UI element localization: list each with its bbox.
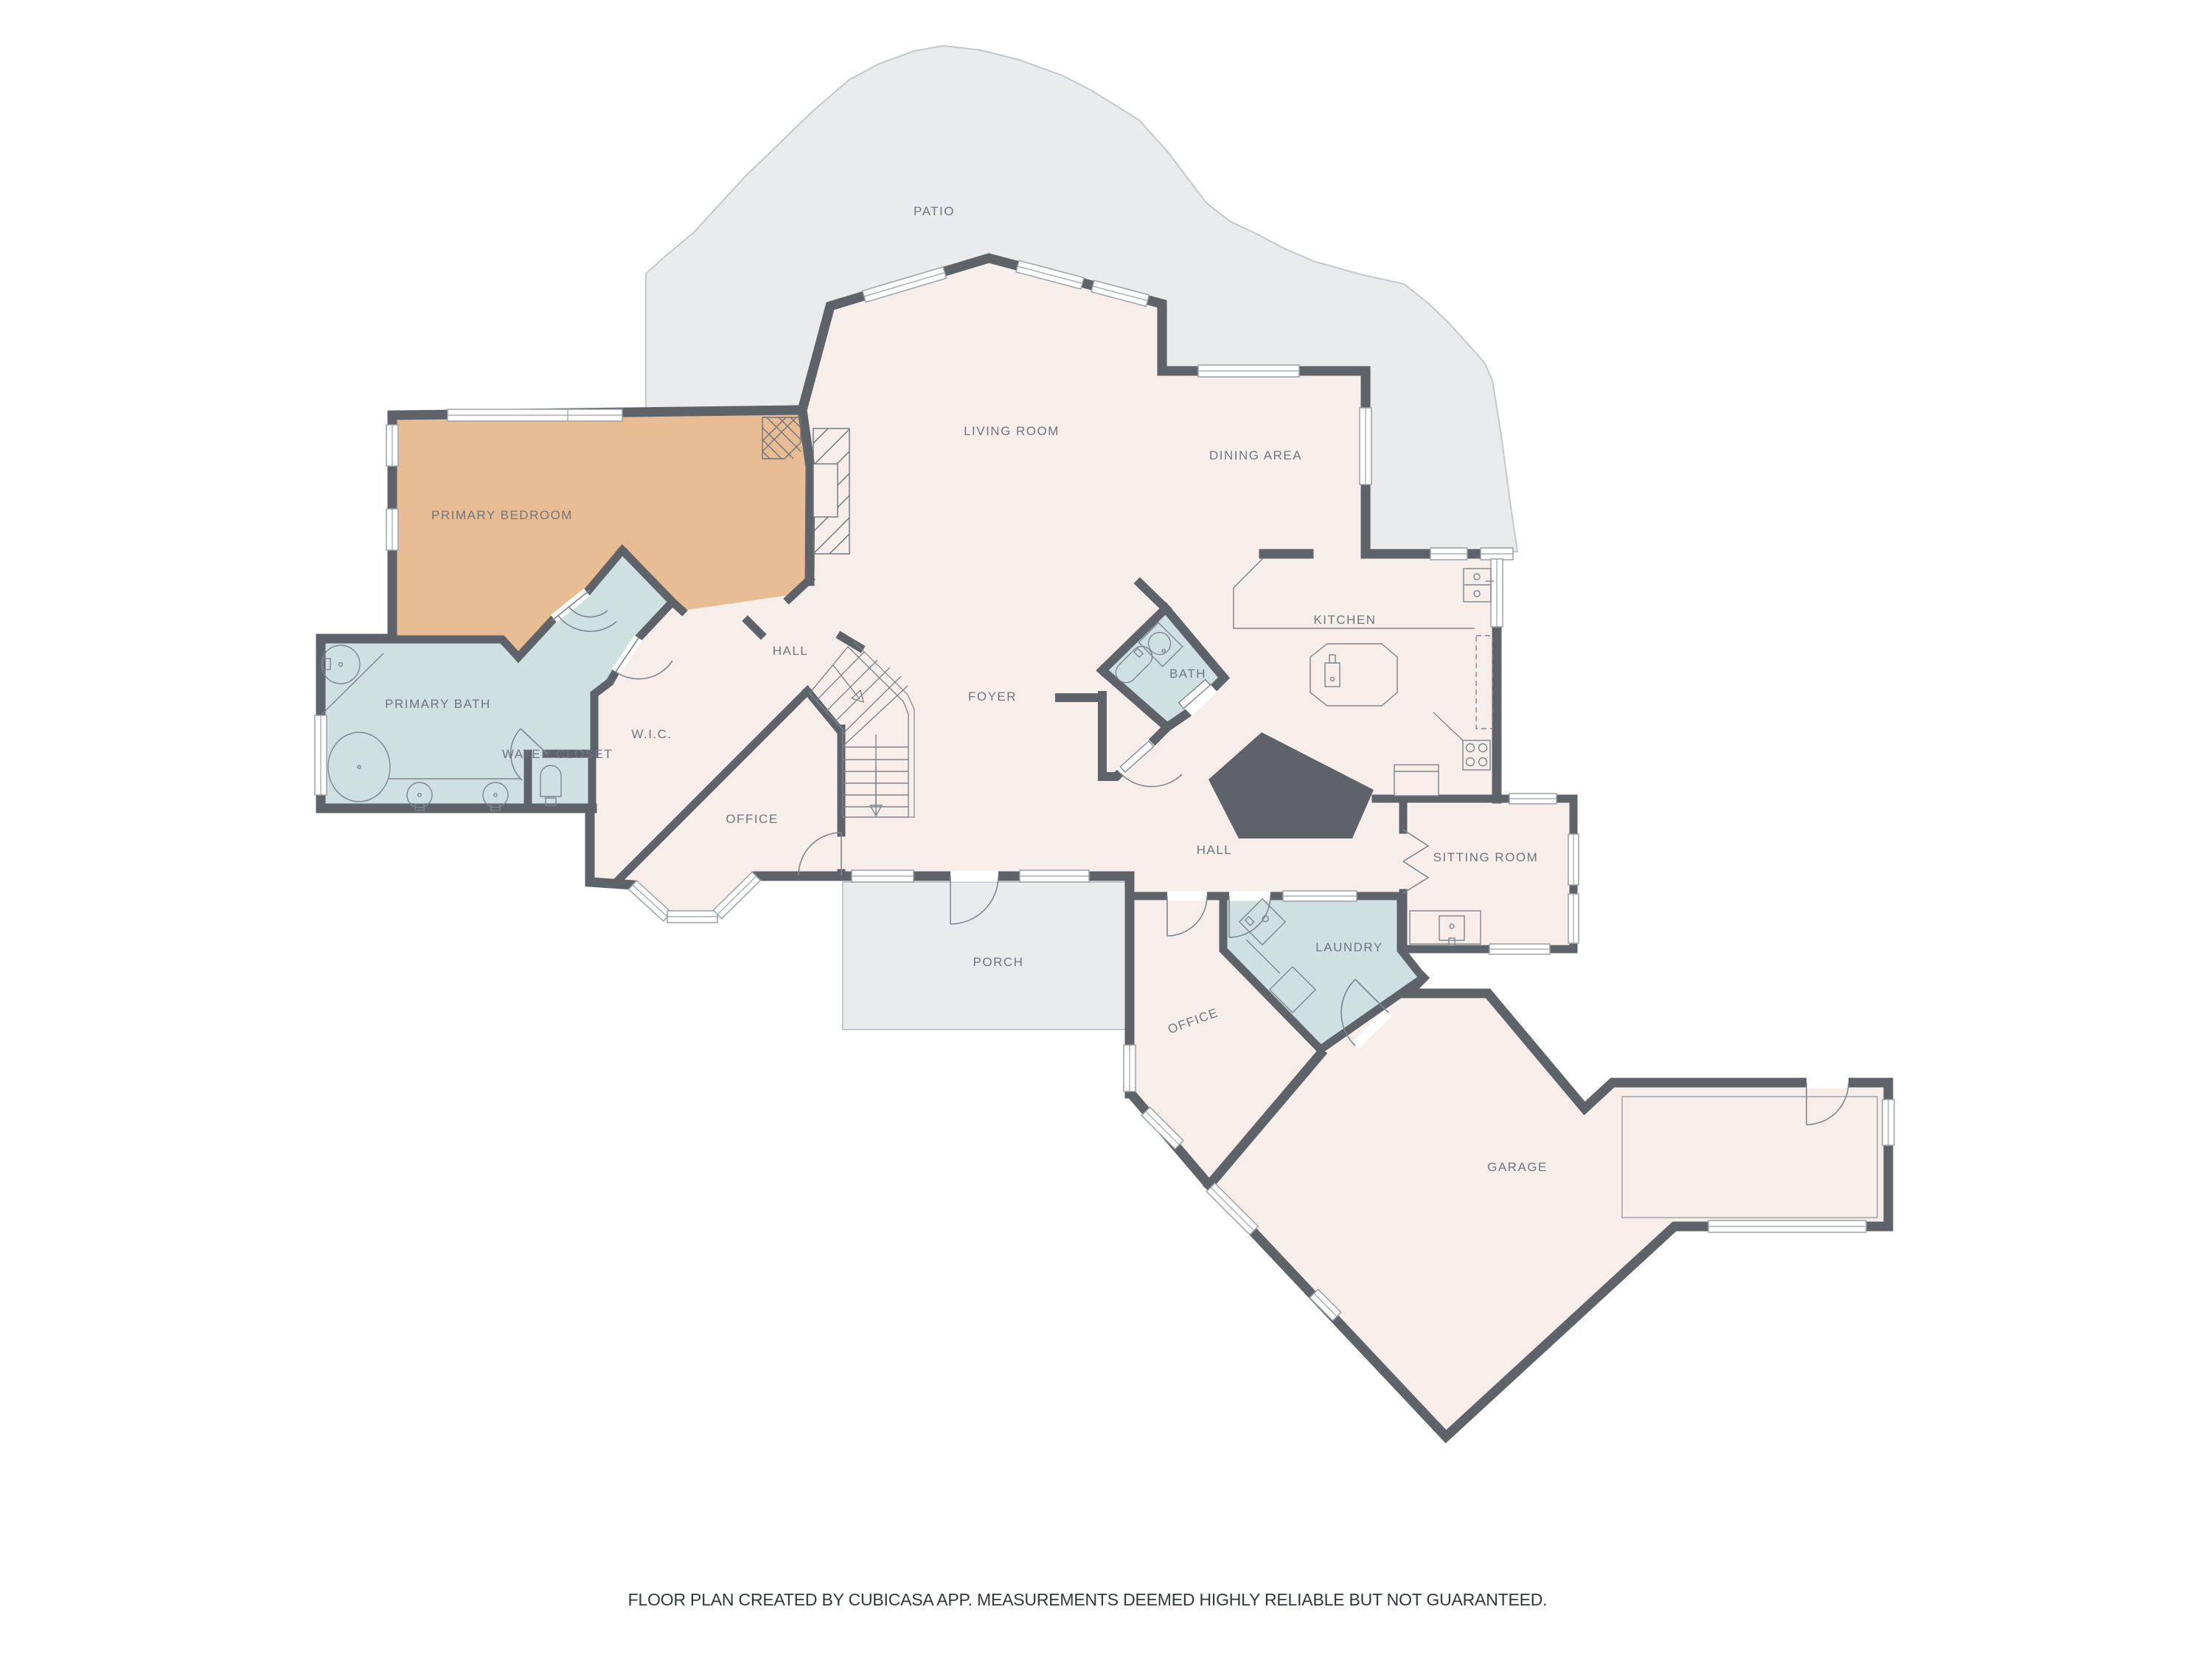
svg-text:OFFICE: OFFICE	[726, 812, 778, 826]
svg-text:DINING AREA: DINING AREA	[1209, 448, 1302, 462]
svg-text:HALL: HALL	[1197, 843, 1233, 857]
svg-text:PATIO: PATIO	[914, 204, 955, 218]
svg-text:GARAGE: GARAGE	[1487, 1160, 1548, 1174]
svg-text:SITTING ROOM: SITTING ROOM	[1433, 850, 1539, 864]
svg-text:PRIMARY BATH: PRIMARY BATH	[385, 697, 491, 711]
svg-text:BATH: BATH	[1169, 667, 1206, 681]
svg-text:PRIMARY BEDROOM: PRIMARY BEDROOM	[431, 508, 573, 522]
svg-text:WATER CLOSET: WATER CLOSET	[502, 747, 613, 761]
svg-text:LIVING ROOM: LIVING ROOM	[964, 424, 1060, 438]
svg-text:KITCHEN: KITCHEN	[1313, 613, 1376, 627]
svg-text:W.I.C.: W.I.C.	[631, 727, 672, 741]
svg-text:HALL: HALL	[773, 644, 809, 658]
svg-text:FOYER: FOYER	[968, 690, 1017, 704]
svg-text:LAUNDRY: LAUNDRY	[1315, 940, 1382, 954]
svg-text:FLOOR PLAN CREATED BY CUBICASA: FLOOR PLAN CREATED BY CUBICASA APP. MEAS…	[628, 1590, 1548, 1609]
svg-text:PORCH: PORCH	[973, 955, 1024, 969]
